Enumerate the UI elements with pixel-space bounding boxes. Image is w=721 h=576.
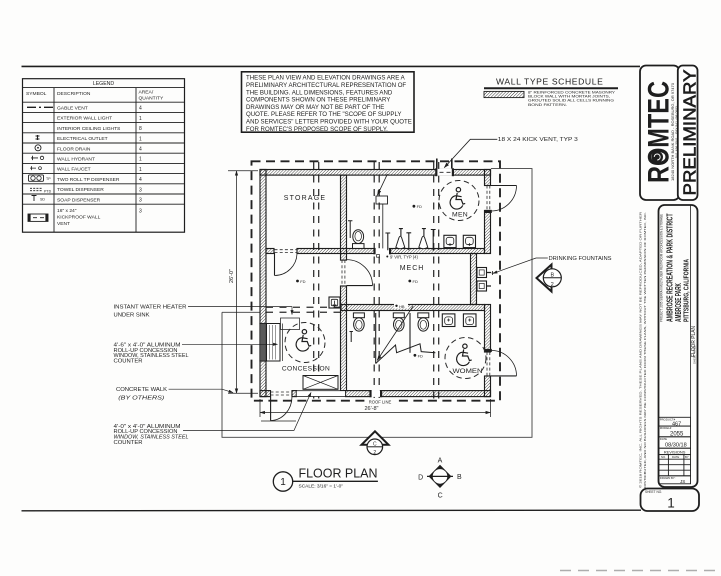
svg-text:PTD: PTD <box>44 189 52 193</box>
svg-text:TP: TP <box>46 177 51 181</box>
svg-text:26'-8": 26'-8" <box>364 406 378 412</box>
svg-text:MODEL#: MODEL# <box>660 426 672 430</box>
svg-text:08/30/18: 08/30/18 <box>665 442 687 448</box>
svg-text:FD: FD <box>300 279 305 284</box>
svg-text:BY: BY <box>685 455 689 459</box>
svg-text:1: 1 <box>139 157 142 163</box>
svg-text:4: 4 <box>139 147 142 153</box>
svg-text:C: C <box>438 493 443 500</box>
svg-text:QUANTITY: QUANTITY <box>139 96 164 102</box>
svg-text:C: C <box>373 441 377 447</box>
svg-text:PRELIMINARY: PRELIMINARY <box>679 69 699 195</box>
svg-text:FD: FD <box>413 279 418 284</box>
svg-text:1: 1 <box>139 116 142 122</box>
svg-text:1: 1 <box>139 136 142 142</box>
svg-text:SD: SD <box>40 198 45 202</box>
svg-text:VENT: VENT <box>57 221 70 227</box>
svg-text:3: 3 <box>139 209 142 215</box>
svg-text:ELECTRICAL OUTLET: ELECTRICAL OUTLET <box>57 136 108 142</box>
svg-text:DISTRIBUTED, AND NO BUILDINGS: DISTRIBUTED, AND NO BUILDINGS MAY BE CON… <box>643 212 647 488</box>
svg-text:COUNTER: COUNTER <box>114 440 143 446</box>
svg-text:QUOTE. PLEASE REFER TO THE "SC: QUOTE. PLEASE REFER TO THE "SCOPE OF SUP… <box>246 111 401 118</box>
svg-text:PRELIMINARY ARCHITECTURAL REPR: PRELIMINARY ARCHITECTURAL REPRESENTATION… <box>246 82 406 89</box>
svg-text:DRAWINGS MAY OR MAY NOT BE PAR: DRAWINGS MAY OR MAY NOT BE PART OF THE <box>246 104 384 111</box>
svg-text:DATE: DATE <box>660 437 667 441</box>
svg-text:LEGEND: LEGEND <box>93 81 115 87</box>
svg-text:DESCRIPTION: DESCRIPTION <box>57 91 91 97</box>
svg-text:WALL FAUCET: WALL FAUCET <box>57 167 91 173</box>
svg-text:FD: FD <box>418 353 423 358</box>
svg-text:AREA/: AREA/ <box>139 90 154 96</box>
svg-text:4: 4 <box>139 177 142 183</box>
svg-text:18 X 24 KICK VENT, TYP 3: 18 X 24 KICK VENT, TYP 3 <box>498 137 578 143</box>
svg-text:2: 2 <box>551 282 554 288</box>
svg-text:4: 4 <box>139 106 142 112</box>
svg-text:JS: JS <box>680 479 685 484</box>
svg-text:467: 467 <box>672 421 681 427</box>
svg-text:9' VIR, TYP (4): 9' VIR, TYP (4) <box>390 254 418 259</box>
svg-text:DRAWN BY:: DRAWN BY: <box>660 476 676 480</box>
svg-text:CONCESSION: CONCESSION <box>282 366 330 373</box>
svg-text:ROOF LINE: ROOF LINE <box>369 399 392 404</box>
svg-text:PITTSBURG, CALIFORNIA: PITTSBURG, CALIFORNIA <box>682 259 691 322</box>
svg-text:SYMBOL: SYMBOL <box>26 91 47 97</box>
svg-text:FLOOR PLAN: FLOOR PLAN <box>691 326 697 357</box>
svg-text:INSTANT WATER HEATER: INSTANT WATER HEATER <box>114 305 187 311</box>
svg-text:2055: 2055 <box>670 432 684 438</box>
svg-text:BOND PATTERN.: BOND PATTERN. <box>528 103 567 107</box>
svg-text:WALL TYPE SCHEDULE: WALL TYPE SCHEDULE <box>496 76 603 86</box>
svg-text:D: D <box>418 475 423 482</box>
svg-text:EXTERIOR WALL LIGHT: EXTERIOR WALL LIGHT <box>57 116 112 122</box>
svg-text:A: A <box>438 457 443 464</box>
svg-text:TWO ROLL TP DISPENSER: TWO ROLL TP DISPENSER <box>57 177 120 183</box>
svg-text:AND SERVICES" LETTER PROVIDED: AND SERVICES" LETTER PROVIDED WITH YOUR … <box>246 119 412 126</box>
svg-text:KICKPROOF WALL: KICKPROOF WALL <box>57 215 101 221</box>
svg-text:1: 1 <box>139 167 142 173</box>
svg-text:3: 3 <box>139 198 142 204</box>
svg-text:SHEET NO.: SHEET NO. <box>645 490 662 494</box>
svg-text:STORAGE: STORAGE <box>284 195 327 202</box>
svg-text:CONCRETE WALK: CONCRETE WALK <box>116 387 168 393</box>
svg-text:GABLE VENT: GABLE VENT <box>57 106 88 112</box>
svg-text:3: 3 <box>139 187 142 193</box>
svg-text:MECH: MECH <box>400 265 425 272</box>
svg-text:B: B <box>550 272 554 278</box>
svg-text:© 2018 ROMTEC, INC. ALL RIGHT: © 2018 ROMTEC, INC. ALL RIGHTS RESERVED.… <box>639 211 643 488</box>
svg-text:FD: FD <box>417 204 422 209</box>
svg-text:HB: HB <box>399 304 405 309</box>
svg-text:DATE: DATE <box>672 455 679 459</box>
svg-text:1: 1 <box>280 477 286 488</box>
svg-text:TOWEL DISPENSER: TOWEL DISPENSER <box>57 187 104 193</box>
svg-text:THE BUILDING. ALL DIMENSIONS,: THE BUILDING. ALL DIMENSIONS, FEATURES A… <box>246 89 393 96</box>
svg-text:B: B <box>457 474 462 481</box>
svg-text:THESE PLAN VIEW AND ELEVATION: THESE PLAN VIEW AND ELEVATION DRAWINGS A… <box>246 75 406 82</box>
svg-text:FOR ROMTEC'S PROPOSED SCOPE OF: FOR ROMTEC'S PROPOSED SCOPE OF SUPPLY. <box>246 126 388 133</box>
svg-text:SCALE: 3/16" = 1'-0": SCALE: 3/16" = 1'-0" <box>299 483 344 489</box>
svg-text:DRINKING FOUNTAINS: DRINKING FOUNTAINS <box>549 256 613 262</box>
svg-text:UNDER SINK: UNDER SINK <box>114 312 151 318</box>
svg-text:SOAP DISPENSER: SOAP DISPENSER <box>57 197 101 203</box>
svg-text:PROJECT: 2055 SIERRA II MULTI-: PROJECT: 2055 SIERRA II MULTI-USER RESTR… <box>660 213 664 322</box>
svg-text:INTERIOR CEILING LIGHTS: INTERIOR CEILING LIGHTS <box>57 126 121 132</box>
svg-text:(BY OTHERS): (BY OTHERS) <box>118 395 164 401</box>
svg-text:26'-0": 26'-0" <box>229 269 235 283</box>
svg-text:REVISIONS: REVISIONS <box>664 450 686 455</box>
svg-text:2: 2 <box>373 450 376 456</box>
svg-text:COMPONENTS SHOWN ON THESE PREL: COMPONENTS SHOWN ON THESE PRELIMINARY <box>246 97 390 104</box>
svg-text:NO.: NO. <box>661 455 666 459</box>
svg-text:WALL HYDRANT: WALL HYDRANT <box>57 157 95 163</box>
svg-text:FLOOR DRAIN: FLOOR DRAIN <box>57 146 91 152</box>
svg-text:16" x 24": 16" x 24" <box>57 208 77 214</box>
svg-text:8: 8 <box>139 126 142 132</box>
svg-text:1: 1 <box>667 496 675 511</box>
svg-text:MEN: MEN <box>452 212 468 219</box>
svg-text:COUNTER: COUNTER <box>114 359 143 365</box>
svg-text:FLOOR PLAN: FLOOR PLAN <box>299 467 378 481</box>
